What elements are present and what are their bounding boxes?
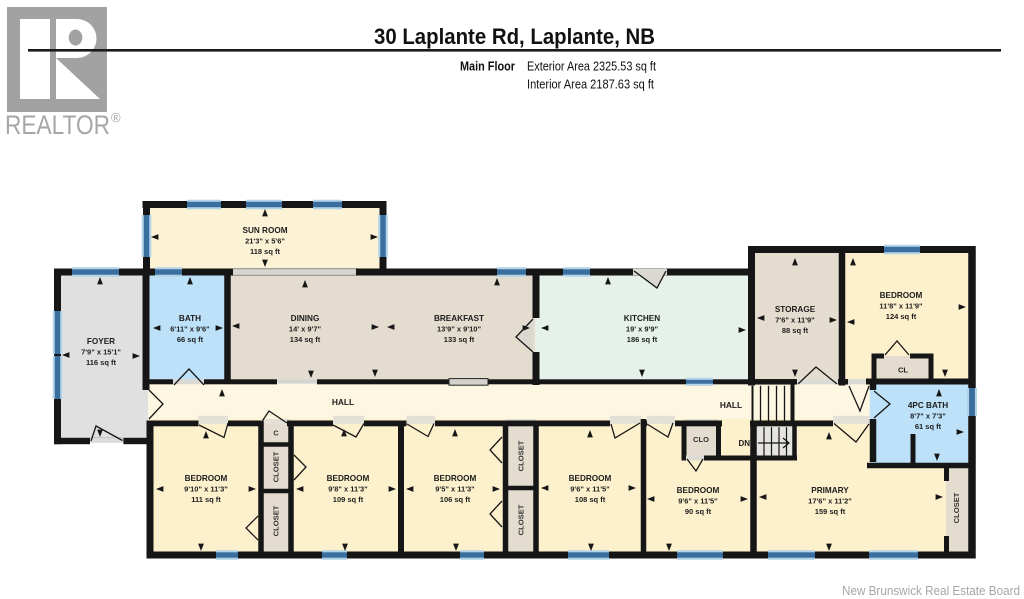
svg-text:17'6" x 11'2": 17'6" x 11'2" bbox=[808, 496, 852, 505]
svg-text:13'9" x 9'10": 13'9" x 9'10" bbox=[437, 324, 481, 333]
svg-text:8'7" x 7'3": 8'7" x 7'3" bbox=[910, 411, 946, 420]
svg-text:BEDROOM: BEDROOM bbox=[327, 474, 370, 483]
svg-text:6'11" x 9'6": 6'11" x 9'6" bbox=[170, 324, 210, 333]
svg-text:BREAKFAST: BREAKFAST bbox=[434, 314, 484, 323]
svg-text:CLOSET: CLOSET bbox=[517, 440, 526, 471]
svg-text:111 sq ft: 111 sq ft bbox=[191, 495, 221, 504]
svg-text:CL: CL bbox=[898, 366, 908, 375]
svg-text:118 sq ft: 118 sq ft bbox=[250, 247, 281, 256]
svg-text:9'10" x 11'3": 9'10" x 11'3" bbox=[184, 484, 228, 493]
svg-text:9'8" x 11'3": 9'8" x 11'3" bbox=[328, 484, 368, 493]
svg-text:BEDROOM: BEDROOM bbox=[434, 474, 477, 483]
svg-text:66 sq ft: 66 sq ft bbox=[177, 335, 204, 344]
svg-text:14' x 9'7": 14' x 9'7" bbox=[289, 324, 322, 333]
svg-text:PRIMARY: PRIMARY bbox=[811, 486, 849, 495]
svg-text:C: C bbox=[273, 429, 278, 438]
svg-text:CLOSET: CLOSET bbox=[517, 504, 526, 535]
svg-text:CLOSET: CLOSET bbox=[272, 505, 281, 536]
svg-text:186 sq ft: 186 sq ft bbox=[627, 335, 658, 344]
svg-text:®: ® bbox=[111, 110, 121, 125]
svg-text:19' x 9'9": 19' x 9'9" bbox=[626, 324, 659, 333]
svg-text:STORAGE: STORAGE bbox=[775, 305, 816, 314]
svg-text:11'8" x 11'9": 11'8" x 11'9" bbox=[879, 301, 923, 310]
svg-text:30 Laplante Rd, Laplante, NB: 30 Laplante Rd, Laplante, NB bbox=[374, 24, 655, 49]
svg-text:7'6" x 11'9": 7'6" x 11'9" bbox=[775, 315, 815, 324]
svg-text:CLOSET: CLOSET bbox=[952, 492, 961, 523]
svg-text:90 sq ft: 90 sq ft bbox=[685, 507, 712, 516]
svg-text:BEDROOM: BEDROOM bbox=[880, 291, 923, 300]
svg-text:New Brunswick Real Estate Boar: New Brunswick Real Estate Board bbox=[842, 584, 1020, 598]
svg-text:159 sq ft: 159 sq ft bbox=[815, 507, 846, 516]
svg-text:9'6" x 11'5": 9'6" x 11'5" bbox=[570, 484, 610, 493]
svg-text:HALL: HALL bbox=[332, 397, 354, 407]
svg-text:134 sq ft: 134 sq ft bbox=[290, 335, 321, 344]
svg-text:HALL: HALL bbox=[720, 400, 742, 410]
svg-text:4PC BATH: 4PC BATH bbox=[908, 401, 948, 410]
svg-text:88 sq ft: 88 sq ft bbox=[782, 326, 809, 335]
svg-text:CLOSET: CLOSET bbox=[272, 451, 281, 482]
svg-text:7'9" x 15'1": 7'9" x 15'1" bbox=[81, 347, 121, 356]
svg-text:KITCHEN: KITCHEN bbox=[624, 314, 660, 323]
svg-text:DINING: DINING bbox=[291, 314, 320, 323]
svg-text:BATH: BATH bbox=[179, 314, 201, 323]
svg-text:DN: DN bbox=[738, 439, 750, 448]
svg-text:109 sq ft: 109 sq ft bbox=[333, 495, 364, 504]
svg-text:21'3" x 5'6": 21'3" x 5'6" bbox=[245, 236, 285, 245]
svg-text:116 sq ft: 116 sq ft bbox=[86, 358, 117, 367]
svg-text:133 sq ft: 133 sq ft bbox=[444, 335, 475, 344]
svg-text:61 sq ft: 61 sq ft bbox=[915, 422, 942, 431]
svg-text:BEDROOM: BEDROOM bbox=[677, 486, 720, 495]
svg-text:9'5" x 11'3": 9'5" x 11'3" bbox=[435, 484, 475, 493]
svg-text:REALTOR: REALTOR bbox=[5, 110, 110, 140]
svg-text:BEDROOM: BEDROOM bbox=[185, 474, 228, 483]
svg-text:124 sq ft: 124 sq ft bbox=[886, 312, 917, 321]
svg-text:Exterior Area 2325.53 sq ft: Exterior Area 2325.53 sq ft bbox=[527, 60, 656, 74]
svg-text:106 sq ft: 106 sq ft bbox=[440, 495, 471, 504]
svg-text:FOYER: FOYER bbox=[87, 337, 115, 346]
svg-text:CLO: CLO bbox=[693, 435, 709, 444]
svg-text:Main Floor: Main Floor bbox=[460, 60, 515, 74]
svg-text:9'6" x 11'5": 9'6" x 11'5" bbox=[678, 496, 718, 505]
svg-text:108 sq ft: 108 sq ft bbox=[575, 495, 606, 504]
svg-text:Interior Area 2187.63 sq ft: Interior Area 2187.63 sq ft bbox=[527, 78, 654, 92]
svg-text:BEDROOM: BEDROOM bbox=[569, 474, 612, 483]
svg-text:SUN ROOM: SUN ROOM bbox=[242, 226, 287, 235]
